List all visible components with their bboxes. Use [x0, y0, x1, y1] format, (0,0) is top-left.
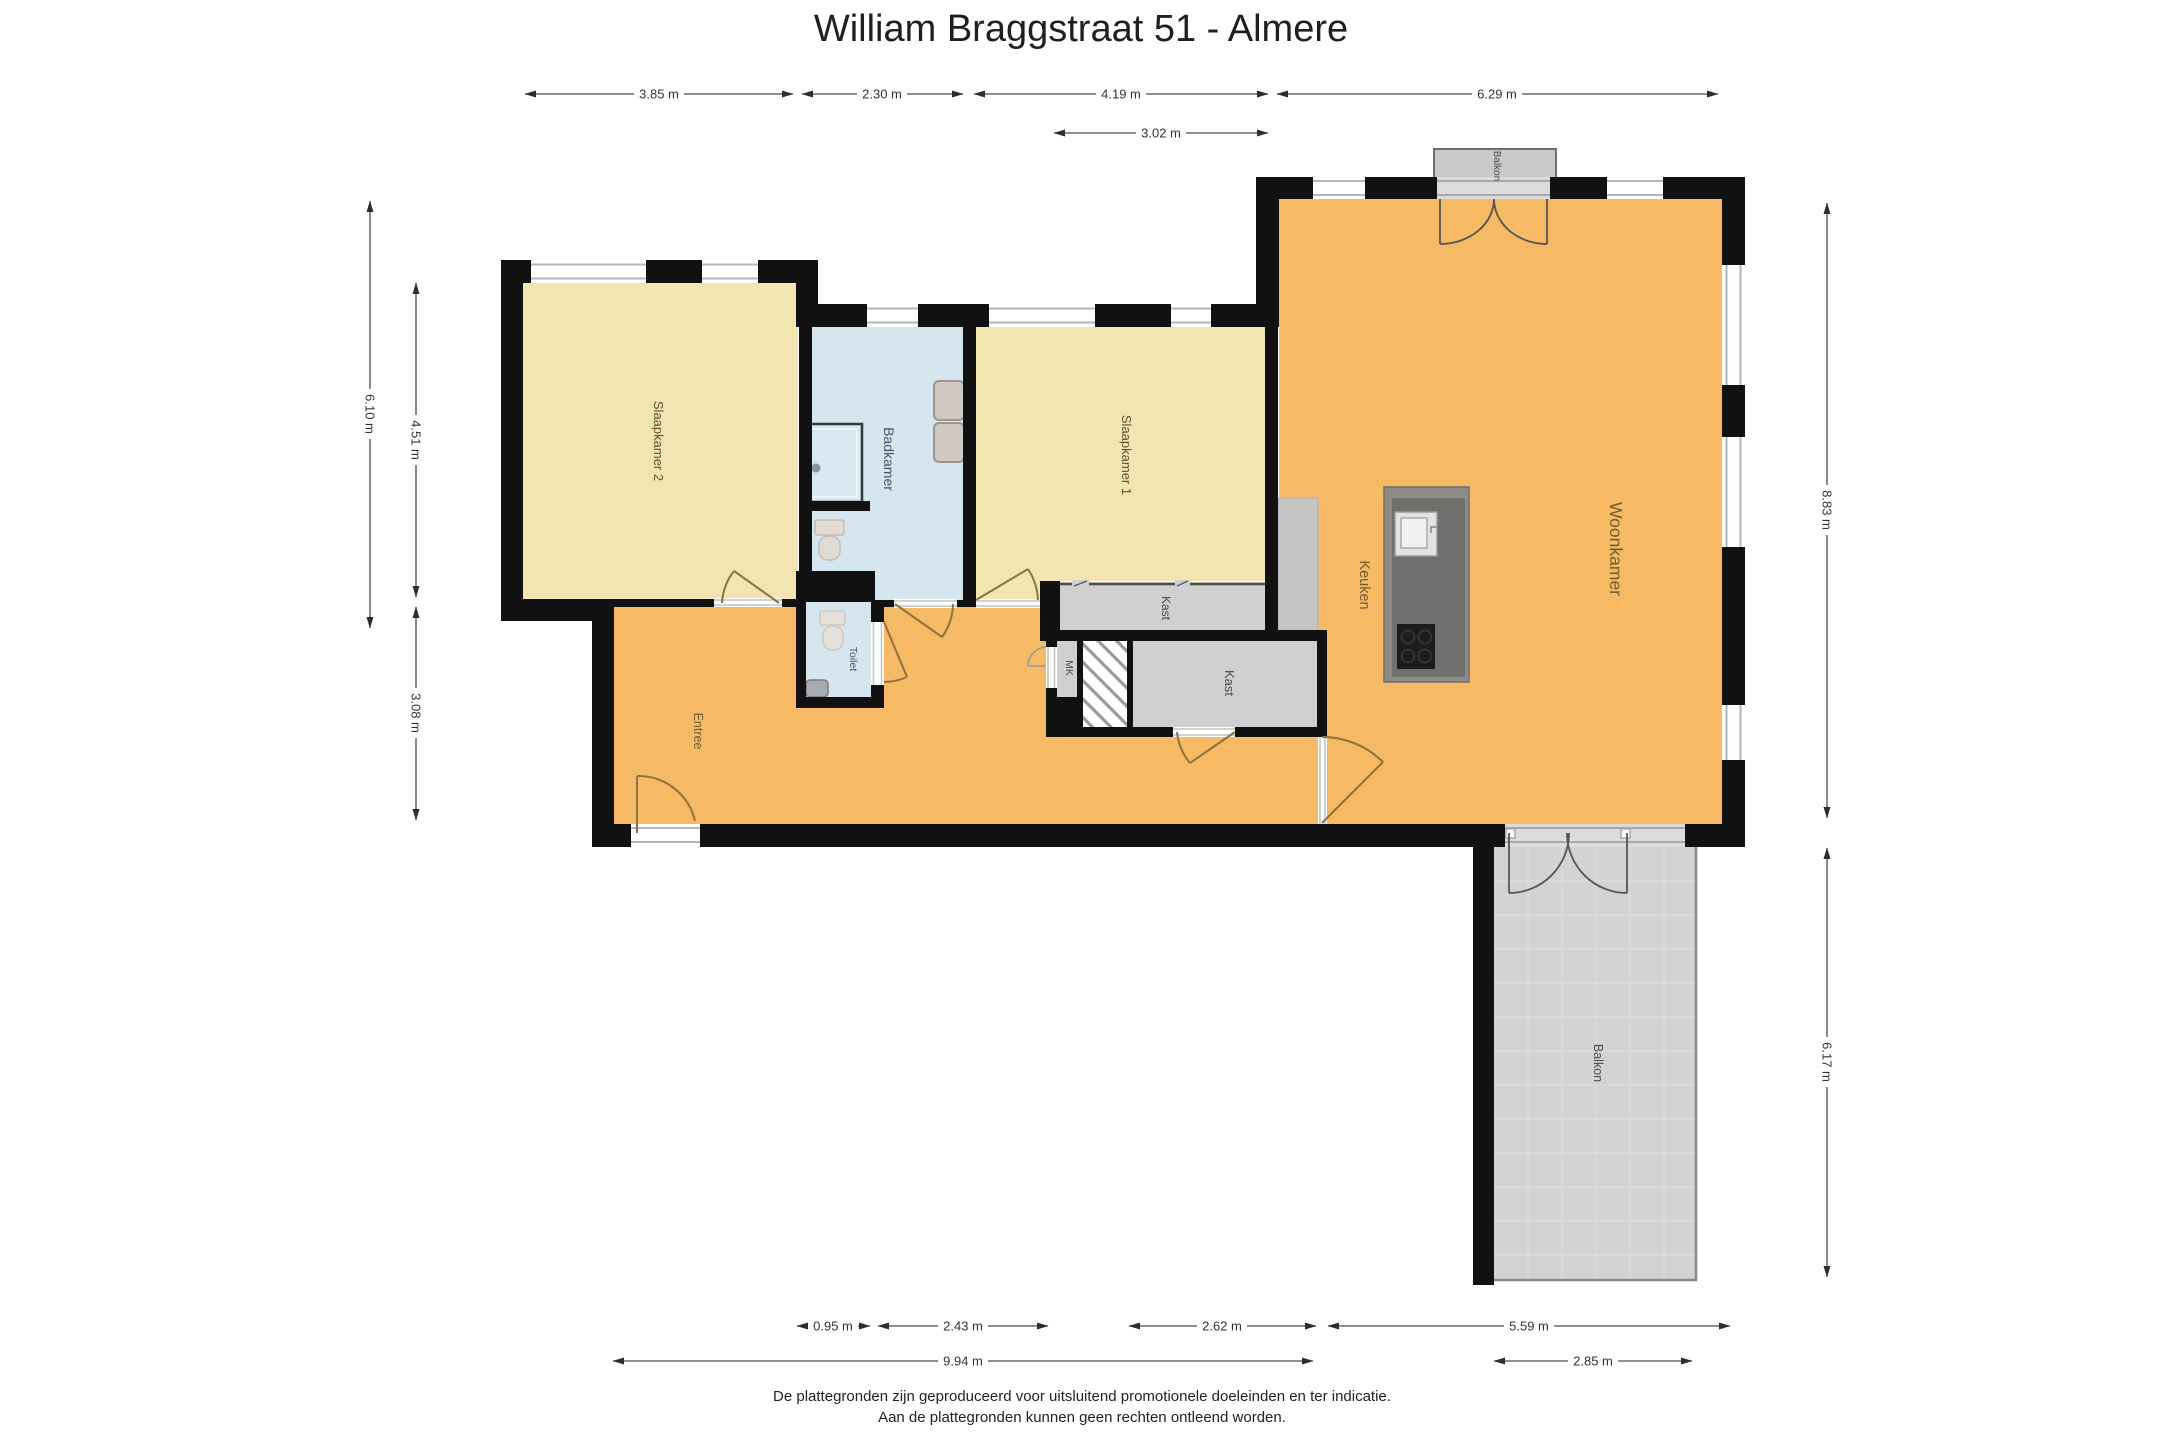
svg-text:Kast: Kast	[1222, 670, 1237, 696]
svg-text:Slaapkamer 2: Slaapkamer 2	[651, 401, 666, 481]
svg-text:Balkon: Balkon	[1591, 1044, 1605, 1082]
svg-text:0.95 m: 0.95 m	[813, 1319, 853, 1334]
svg-text:6.10 m: 6.10 m	[363, 394, 378, 434]
svg-text:Slaapkamer 1: Slaapkamer 1	[1119, 415, 1134, 495]
svg-text:8.83 m: 8.83 m	[1820, 490, 1835, 530]
svg-text:2.85 m: 2.85 m	[1573, 1354, 1613, 1369]
svg-text:3.02 m: 3.02 m	[1141, 126, 1181, 141]
svg-text:6.17 m: 6.17 m	[1820, 1042, 1835, 1082]
svg-text:2.62 m: 2.62 m	[1202, 1319, 1242, 1334]
svg-text:3.85 m: 3.85 m	[639, 87, 679, 102]
svg-text:MK: MK	[1063, 660, 1075, 676]
svg-text:5.59 m: 5.59 m	[1509, 1319, 1549, 1334]
svg-text:Balkon: Balkon	[1491, 151, 1502, 182]
svg-text:Toilet: Toilet	[847, 647, 859, 672]
svg-text:2.43 m: 2.43 m	[943, 1319, 983, 1334]
svg-text:De plattegronden zijn geproduc: De plattegronden zijn geproduceerd voor …	[773, 1388, 1391, 1405]
svg-text:2.30 m: 2.30 m	[862, 87, 902, 102]
svg-text:William Braggstraat 51 - Almer: William Braggstraat 51 - Almere	[814, 8, 1348, 50]
svg-text:Woonkamer: Woonkamer	[1606, 502, 1626, 596]
svg-text:3.08 m: 3.08 m	[409, 693, 424, 733]
svg-text:Badkamer: Badkamer	[881, 427, 897, 491]
svg-text:4.19 m: 4.19 m	[1101, 87, 1141, 102]
svg-text:Entree: Entree	[691, 713, 705, 750]
svg-text:6.29 m: 6.29 m	[1477, 87, 1517, 102]
svg-text:9.94 m: 9.94 m	[943, 1354, 983, 1369]
svg-text:Aan de plattegronden kunnen ge: Aan de plattegronden kunnen geen rechten…	[878, 1409, 1286, 1426]
svg-text:Kast: Kast	[1159, 596, 1173, 621]
svg-text:4.51 m: 4.51 m	[409, 420, 424, 460]
svg-text:Keuken: Keuken	[1356, 560, 1372, 609]
